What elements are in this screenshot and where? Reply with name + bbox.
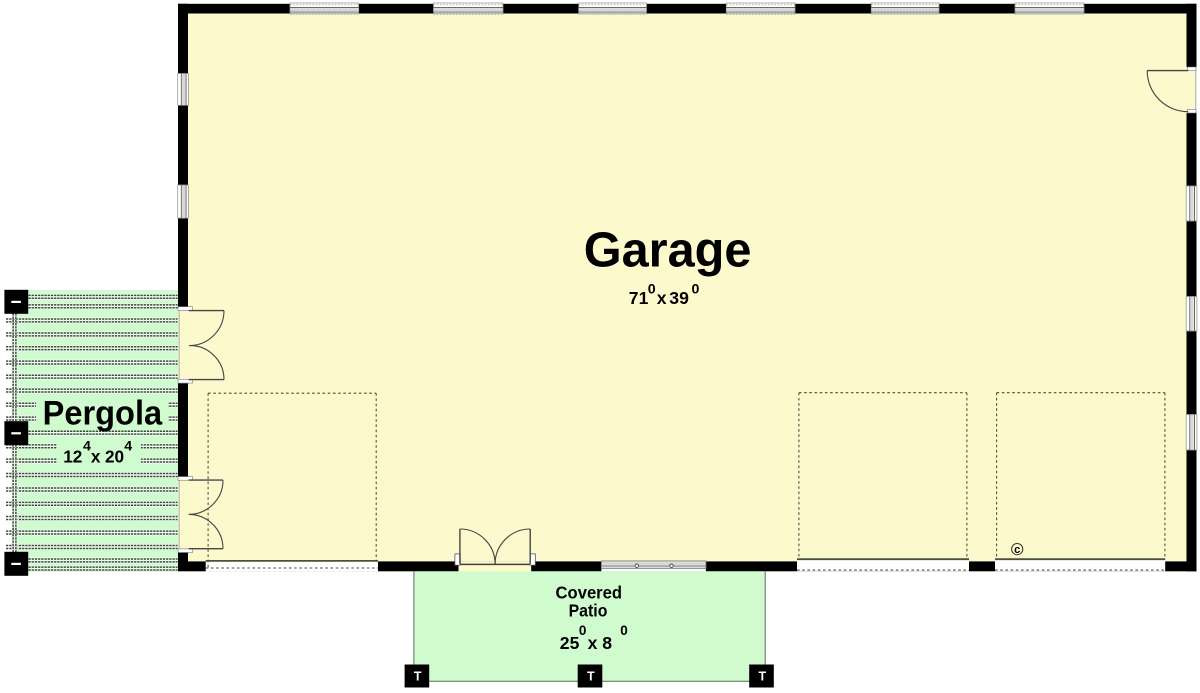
svg-text:25: 25 <box>560 633 580 653</box>
svg-text:T: T <box>758 670 766 684</box>
svg-text:0: 0 <box>620 623 628 638</box>
svg-text:71: 71 <box>629 288 649 308</box>
svg-text:T: T <box>587 670 595 684</box>
svg-text:Pergola: Pergola <box>43 395 163 433</box>
svg-text:8: 8 <box>602 633 612 653</box>
svg-text:0: 0 <box>579 623 587 638</box>
svg-text:Garage: Garage <box>584 223 752 278</box>
svg-text:x: x <box>91 447 101 467</box>
svg-text:0: 0 <box>692 282 700 298</box>
svg-text:4: 4 <box>83 438 91 454</box>
svg-text:0: 0 <box>648 282 656 298</box>
svg-text:39: 39 <box>669 288 689 308</box>
svg-text:c: c <box>1014 544 1020 556</box>
svg-text:12: 12 <box>63 447 82 467</box>
svg-text:4: 4 <box>124 438 132 454</box>
svg-text:x: x <box>588 633 598 653</box>
svg-text:20: 20 <box>105 447 124 467</box>
svg-text:Patio: Patio <box>569 601 608 621</box>
svg-text:x: x <box>657 288 667 308</box>
svg-text:T: T <box>414 670 422 684</box>
